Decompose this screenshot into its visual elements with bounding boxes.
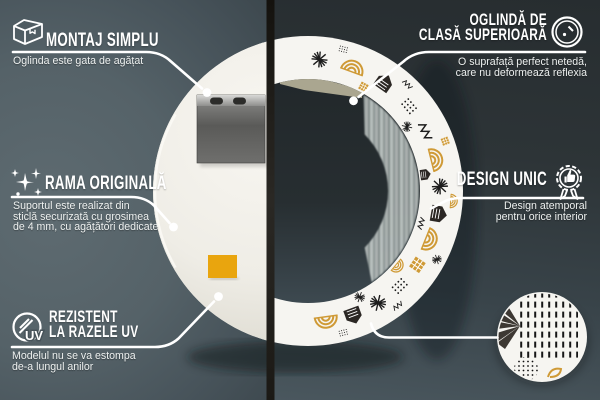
- mirror-icon: [549, 14, 585, 55]
- callout-title-rezistent-uv: REZISTENT LA RAZELE UV: [49, 310, 177, 339]
- title-line: MONTAJ SIMPLU: [46, 33, 159, 48]
- desc-line: Oglinda este gata de agățat: [13, 56, 143, 67]
- title-line: DESIGN UNIC: [457, 172, 547, 187]
- callout-title-design-unic: DESIGN UNIC: [418, 172, 547, 187]
- callout-desc-rezistent-uv: Modelul nu se va estompa de-a lungul ani…: [12, 351, 136, 372]
- desc-line: pentru orice interior: [496, 212, 587, 223]
- desc-line: de 4 mm, cu agățători dedicate: [13, 222, 158, 233]
- callout-desc-oglinda-clasa: O suprafață perfect netedă, care nu defo…: [456, 57, 587, 78]
- title-line: LA RAZELE UV: [49, 325, 139, 340]
- uv-shield-icon: UV: [11, 311, 47, 352]
- keyhole-slot: [210, 98, 223, 105]
- pattern-detail-circle: [489, 292, 588, 385]
- desc-line: de-a lungul anilor: [12, 362, 136, 373]
- desc-line: care nu deformează reflexia: [456, 68, 587, 79]
- title-line: CLASĂ SUPERIOARĂ: [419, 28, 547, 43]
- split-divider: [267, 0, 275, 400]
- keyhole-slot: [233, 98, 246, 105]
- uv-icon-label: UV: [25, 328, 43, 343]
- product-feature-scene: MONTAJ SIMPLU Oglinda este gata de agăța…: [0, 0, 600, 400]
- callout-desc-rama-originala: Suportul este realizat din sticlă securi…: [13, 201, 158, 233]
- callout-desc-montaj-simplu: Oglinda este gata de agățat: [13, 56, 143, 67]
- callout-desc-design-unic: Design atemporal pentru orice interior: [496, 201, 587, 222]
- callout-title-oglinda-clasa: OGLINDĂ DE CLASĂ SUPERIOARĂ: [364, 13, 547, 42]
- callout-title-rama-originala: RAMA ORIGINALĂ: [45, 176, 219, 191]
- box-icon: [11, 17, 45, 52]
- title-line: RAMA ORIGINALĂ: [45, 176, 167, 191]
- orange-sticker: [208, 255, 237, 278]
- callout-title-montaj-simplu: MONTAJ SIMPLU: [46, 33, 207, 48]
